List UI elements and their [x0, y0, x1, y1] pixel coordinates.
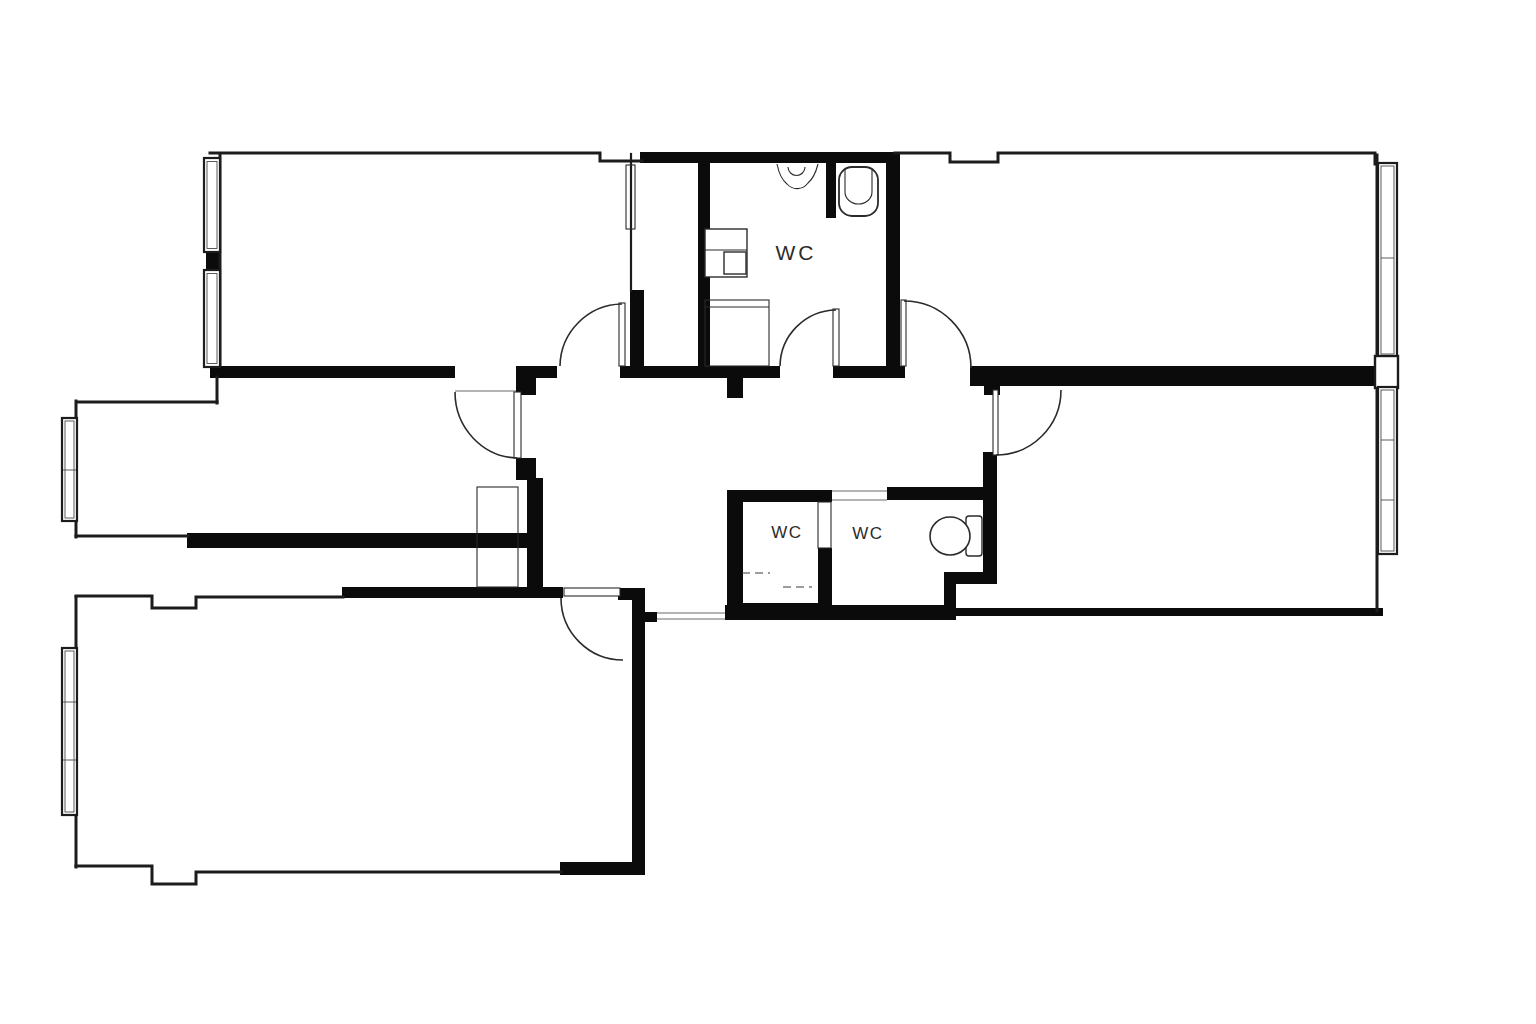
window-top-left-b: [204, 270, 220, 367]
wc-label-top: WC: [776, 241, 817, 264]
window-top-right: [1378, 163, 1397, 357]
door-lower-wc-leaf: [818, 502, 831, 548]
floor-plan: WC WC WC: [0, 0, 1536, 1024]
wc-label-lower-right: WC: [852, 524, 883, 543]
window-right-middle: [1378, 387, 1397, 554]
window-bottom-left: [62, 648, 77, 815]
toilet-icon-lower: [930, 516, 982, 556]
window-left-middle: [62, 418, 77, 521]
toilet-icon-top: [839, 167, 878, 216]
window-top-left-a: [204, 158, 220, 252]
cabinet-icon: [705, 229, 747, 277]
floor-plan-drawing: WC WC WC: [0, 0, 1536, 1024]
window-pier-right: [1375, 356, 1398, 388]
wc-label-lower-left: WC: [771, 523, 802, 542]
